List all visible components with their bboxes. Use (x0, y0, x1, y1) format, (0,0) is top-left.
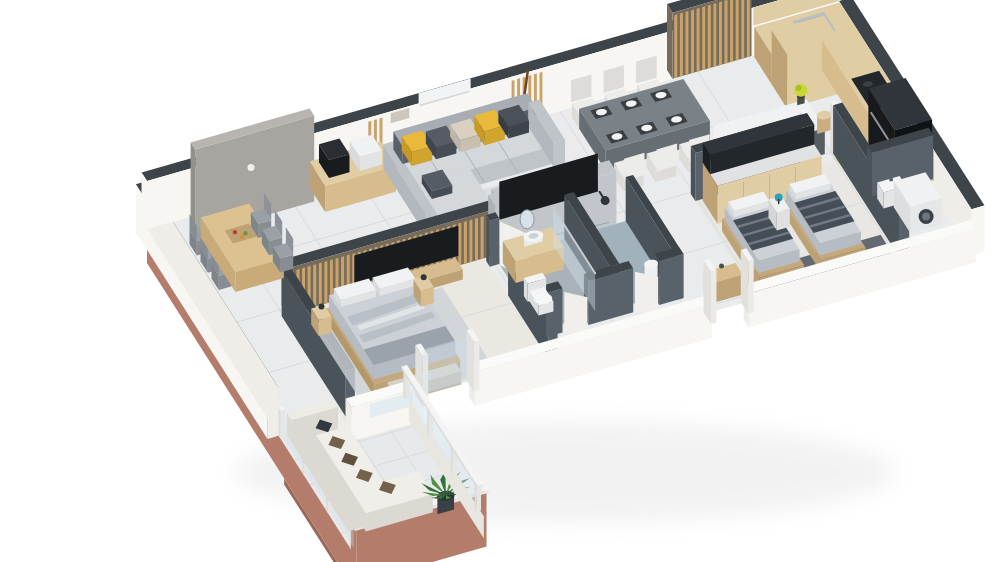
apartment-3d-floor-plan (0, 0, 1000, 562)
rendering-canvas (0, 0, 1000, 562)
